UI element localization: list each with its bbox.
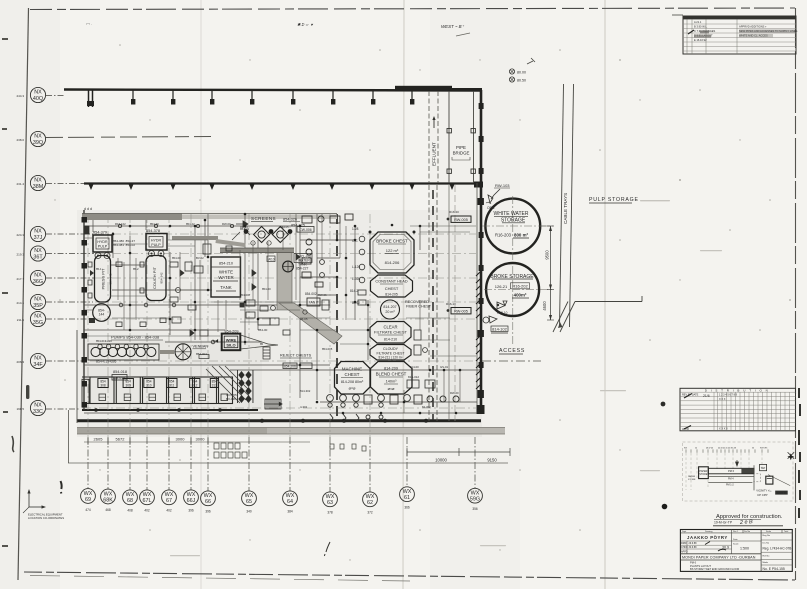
svg-text:APPD: APPD <box>681 550 688 553</box>
svg-text:NX: NX <box>34 403 42 409</box>
svg-text:312: 312 <box>192 383 198 387</box>
svg-text:854-001: 854-001 <box>196 352 207 356</box>
svg-text:64-105: 64-105 <box>280 225 289 229</box>
svg-text:PULP STORAGE: PULP STORAGE <box>589 197 639 203</box>
svg-text:366: 366 <box>404 506 410 510</box>
svg-text:85-1: 85-1 <box>96 267 102 271</box>
svg-text:d d d: d d d <box>84 207 92 211</box>
svg-text:68: 68 <box>127 498 133 504</box>
svg-text:Made: Made <box>763 562 769 564</box>
svg-text:Drawing: Drawing <box>705 531 712 533</box>
svg-text:126-21: 126-21 <box>495 284 508 289</box>
svg-text:36T: 36T <box>33 254 43 260</box>
svg-text:122 m³: 122 m³ <box>386 248 399 253</box>
svg-text:30.9.88: 30.9.88 <box>689 546 698 549</box>
svg-text:NX: NX <box>34 178 42 184</box>
svg-text:29.9.88: 29.9.88 <box>689 542 698 545</box>
svg-text:FIBER CHEST: FIBER CHEST <box>406 305 432 309</box>
svg-text:854-342: 854-342 <box>160 272 164 283</box>
svg-text:814-2: 814-2 <box>350 289 358 293</box>
svg-text:39Q: 39Q <box>33 140 43 146</box>
svg-text:PUMPS 854-030 - 854-038: PUMPS 854-030 - 854-038 <box>111 335 160 340</box>
svg-text:63: 63 <box>327 500 333 506</box>
svg-text:1:500: 1:500 <box>740 547 749 551</box>
svg-text:68K: 68K <box>103 497 113 503</box>
svg-text:R16-102: R16-102 <box>115 222 126 226</box>
svg-text:20 m³: 20 m³ <box>385 310 395 314</box>
svg-text:CHEST: CHEST <box>345 372 360 377</box>
svg-text:X X X: X X X <box>719 398 726 401</box>
svg-text:402: 402 <box>144 509 150 513</box>
svg-text:67: 67 <box>166 498 172 504</box>
svg-text:JAAKKO PÖYRY: JAAKKO PÖYRY <box>687 535 728 540</box>
svg-text:854-00: 854-00 <box>262 287 271 291</box>
svg-text:PRESS PIT: PRESS PIT <box>101 268 106 289</box>
svg-text:854-019-226: 854-019-226 <box>96 339 112 343</box>
svg-text:384: 384 <box>287 510 293 514</box>
svg-text:NX: NX <box>34 273 42 279</box>
svg-text:36G: 36G <box>33 279 43 285</box>
svg-text:RW-00: RW-00 <box>222 222 231 226</box>
svg-text:No. E P54-155: No. E P54-155 <box>763 567 785 571</box>
svg-text:814-210: 814-210 <box>384 338 397 342</box>
svg-text:65: 65 <box>246 499 252 505</box>
svg-text:BRIDGE: BRIDGE <box>453 151 470 156</box>
svg-text:RECOVERED: RECOVERED <box>405 300 429 304</box>
svg-text:44 43 42 41 40 39a 38: 44 43 42 41 40 39a 38 <box>718 448 736 450</box>
svg-text:372: 372 <box>367 511 373 515</box>
svg-text:SCREENS: SCREENS <box>251 216 276 221</box>
svg-text:854-341: 854-341 <box>109 273 113 284</box>
svg-text:PM 1-2: PM 1-2 <box>726 484 734 487</box>
svg-text:CONSTANT HEAD: CONSTANT HEAD <box>375 280 407 284</box>
svg-text:34F: 34F <box>33 362 43 368</box>
svg-text:WHITE: WHITE <box>219 270 233 275</box>
svg-text:R15-10: R15-10 <box>497 311 508 315</box>
svg-text:206.3: 206.3 <box>16 360 24 364</box>
svg-text:310: 310 <box>146 383 152 387</box>
svg-text:⌀≈⌀: ⌀≈⌀ <box>349 387 356 391</box>
svg-text:854-378: 854-378 <box>146 229 160 233</box>
svg-text:R16-10: R16-10 <box>446 302 456 306</box>
svg-text:66: 66 <box>205 499 211 505</box>
svg-text:854-379: 854-379 <box>93 231 107 235</box>
svg-text:MACHINE: MACHINE <box>342 367 362 372</box>
svg-text:854-381: 854-381 <box>113 243 124 247</box>
svg-text:STORE: STORE <box>688 479 696 481</box>
svg-text:⌀≈⌀: ⌀≈⌀ <box>388 387 395 391</box>
svg-text:BV-03b: BV-03b <box>226 397 236 401</box>
svg-text:3000: 3000 <box>196 437 206 442</box>
svg-text:814-205: 814-205 <box>385 293 398 297</box>
svg-text:219.3: 219.3 <box>16 253 24 257</box>
svg-text:854-206: 854-206 <box>284 365 296 369</box>
svg-text:814-102: 814-102 <box>492 327 507 332</box>
svg-text:VENBAN: VENBAN <box>193 345 209 349</box>
svg-text:GMT D: GMT D <box>777 491 786 495</box>
svg-text:BROKE CHEST: BROKE CHEST <box>376 239 408 244</box>
svg-text:854-227: 854-227 <box>296 267 309 271</box>
svg-text:BS STOREY WET END GROUND FLOO: BS STOREY WET END GROUND FLOOR <box>690 567 739 571</box>
svg-text:WEST ~ B⁺: WEST ~ B⁺ <box>441 24 465 29</box>
svg-text:PM 4: PM 4 <box>728 478 734 481</box>
svg-text:198.5: 198.5 <box>16 407 24 411</box>
svg-text:80.00: 80.00 <box>517 71 526 75</box>
svg-text:TAP: TAP <box>761 467 766 470</box>
svg-text:CW-006: CW-006 <box>299 228 311 232</box>
svg-text:814-208 80m³: 814-208 80m³ <box>341 380 364 384</box>
svg-text:84-302: 84-302 <box>422 405 431 409</box>
svg-text:R16-203: R16-203 <box>495 233 512 238</box>
svg-text:814-302: 814-302 <box>300 389 311 393</box>
svg-text:814-209: 814-209 <box>384 367 398 371</box>
svg-text:Reg. L7434-HC-07B: Reg. L7434-HC-07B <box>763 547 792 551</box>
svg-text:854-019-026: 854-019-026 <box>96 360 116 364</box>
svg-text:80.50: 80.50 <box>517 79 526 83</box>
svg-text:REJECT CHESTS: REJECT CHESTS <box>280 354 312 358</box>
svg-text:2 e B: 2 e B <box>739 519 754 526</box>
svg-text:RW-06: RW-06 <box>318 293 327 297</box>
svg-text:PAPER: PAPER <box>688 475 696 478</box>
svg-text:62: 62 <box>367 500 373 506</box>
svg-text:402: 402 <box>166 509 172 513</box>
svg-text:FILTRATE CHEST: FILTRATE CHEST <box>374 330 408 335</box>
svg-text:COUCH PIT: COUCH PIT <box>152 266 157 289</box>
svg-text:NX: NX <box>34 248 42 254</box>
svg-text:PULP: PULP <box>98 245 108 249</box>
svg-text:RW-103: RW-103 <box>495 183 510 188</box>
svg-text:NX: NX <box>34 229 42 235</box>
svg-text:NX: NX <box>34 297 42 303</box>
svg-text:Rev 1: Rev 1 <box>733 531 739 533</box>
svg-text:CHKD: CHKD <box>681 546 688 549</box>
svg-text:Scale: Scale <box>733 544 739 546</box>
svg-text:468: 468 <box>105 508 111 512</box>
svg-text:WX7 WX: WX7 WX <box>760 448 768 450</box>
svg-text:WATER: WATER <box>218 275 233 280</box>
svg-text:OPt2: OPt2 <box>487 206 495 210</box>
svg-text:356: 356 <box>472 507 478 511</box>
svg-text:37J: 37J <box>34 235 43 241</box>
svg-text:Total: Total <box>784 530 789 533</box>
svg-text:⌐¬ ∙: ⌐¬ ∙ <box>86 22 92 26</box>
svg-text:R16-202: R16-202 <box>512 284 528 289</box>
svg-text:HYDR: HYDR <box>97 240 108 244</box>
svg-text:48 47 46: 48 47 46 <box>706 448 713 450</box>
svg-text:A 21.1: A 21.1 <box>694 20 702 24</box>
svg-text:RW-00: RW-00 <box>450 391 459 395</box>
svg-text:Date: Date <box>733 538 738 541</box>
svg-text:4600: 4600 <box>542 301 547 311</box>
svg-text:140m³: 140m³ <box>386 380 397 384</box>
svg-text:Ref No: Ref No <box>763 556 771 558</box>
svg-text:61: 61 <box>404 495 410 501</box>
svg-text:378: 378 <box>327 511 333 515</box>
svg-text:35G: 35G <box>33 320 43 326</box>
svg-text:W10: W10 <box>268 258 275 262</box>
svg-text:854-30: 854-30 <box>150 222 159 226</box>
svg-text:40Q: 40Q <box>33 96 43 102</box>
svg-text:9150: 9150 <box>487 458 497 463</box>
svg-text:54: 54 <box>695 448 697 450</box>
svg-text:9500: 9500 <box>545 250 550 260</box>
svg-text:NX: NX <box>34 134 42 140</box>
svg-text:30.9: 30.9 <box>722 546 729 550</box>
svg-text:ACCESS: ACCESS <box>499 348 525 354</box>
svg-text:854-018: 854-018 <box>113 370 127 374</box>
svg-text:85: 85 <box>260 342 264 346</box>
svg-text:814-211 | 120 m³: 814-211 | 120 m³ <box>379 356 403 360</box>
svg-text:814-207: 814-207 <box>383 305 396 309</box>
svg-text:2605: 2605 <box>94 437 104 442</box>
svg-text:PULP: PULP <box>151 243 161 247</box>
svg-text:217.7: 217.7 <box>16 277 24 281</box>
svg-text:PM 6: PM 6 <box>728 469 735 473</box>
svg-text:854-02: 854-02 <box>126 243 136 247</box>
svg-text:85-2: 85-2 <box>133 267 139 271</box>
svg-text:67L: 67L <box>143 498 152 504</box>
svg-text:5672: 5672 <box>116 437 126 442</box>
svg-text:GS-01: GS-01 <box>440 365 449 369</box>
svg-text:CLOUDY: CLOUDY <box>383 347 399 351</box>
svg-text:854-005: 854-005 <box>322 347 333 351</box>
svg-text:PIPE: PIPE <box>456 145 466 150</box>
svg-text:854-210: 854-210 <box>219 262 233 266</box>
svg-text:854-02: 854-02 <box>186 222 195 226</box>
svg-text:LOCATION CO-ORDINATES: LOCATION CO-ORDINATES <box>28 516 64 520</box>
svg-text:814-00: 814-00 <box>410 365 419 369</box>
svg-text:33C: 33C <box>33 409 43 415</box>
svg-text:RW-005: RW-005 <box>454 218 468 222</box>
svg-text:800 m³: 800 m³ <box>514 233 528 238</box>
svg-text:NX: NX <box>34 356 42 362</box>
svg-text:Dept: Dept <box>682 530 687 533</box>
svg-text:X X X X: X X X X <box>719 428 728 431</box>
svg-text:19-M-Gr-TP: 19-M-Gr-TP <box>714 521 733 525</box>
svg-text:340: 340 <box>246 510 252 514</box>
svg-text:854-326: 854-326 <box>283 218 297 222</box>
svg-text:814-312: 814-312 <box>408 375 419 379</box>
svg-text:214.1: 214.1 <box>16 301 24 305</box>
svg-text:Rw-10: Rw-10 <box>240 225 249 229</box>
svg-text:Dis No: Dis No <box>763 543 770 545</box>
svg-text:CABLE TRAYS: CABLE TRAYS <box>563 193 568 224</box>
svg-text:38M: 38M <box>33 184 44 190</box>
svg-text:35P: 35P <box>33 303 43 309</box>
svg-text:1-28: 1-28 <box>352 227 359 231</box>
svg-text:69: 69 <box>85 497 91 503</box>
svg-text:CP CPP: CP CPP <box>757 493 767 497</box>
svg-text:SILO: SILO <box>226 343 235 348</box>
svg-text:1 2 3 4 5 6 7 8 9: 1 2 3 4 5 6 7 8 9 <box>719 394 738 397</box>
svg-text:R16-20: R16-20 <box>449 210 459 214</box>
svg-text:TANK: TANK <box>220 285 231 290</box>
svg-text:211.5: 211.5 <box>17 318 25 322</box>
svg-text:HYDR: HYDR <box>151 239 162 243</box>
svg-text:21/6: 21/6 <box>703 394 710 398</box>
svg-text:Scale: Scale <box>766 531 772 533</box>
svg-text:✱ Σ·=· ▾: ✱ Σ·=· ▾ <box>297 22 314 27</box>
svg-text:814-206: 814-206 <box>385 260 400 265</box>
svg-text:NX: NX <box>34 90 42 96</box>
svg-text:EFFLUENT: EFFLUENT <box>432 142 437 166</box>
svg-text:59G: 59G <box>470 497 480 503</box>
svg-text:238.0: 238.0 <box>16 138 24 142</box>
svg-text:DRW: DRW <box>681 542 687 545</box>
svg-text:MONDI PAPER COMPANY LTD -DURBA: MONDI PAPER COMPANY LTD -DURBAN <box>682 555 756 559</box>
svg-text:400m³: 400m³ <box>514 293 527 298</box>
svg-text:854-00: 854-00 <box>172 256 181 260</box>
svg-text:4-302: 4-302 <box>300 405 308 409</box>
svg-text:FAN P: FAN P <box>309 301 320 305</box>
svg-text:854-007: 854-007 <box>240 293 251 297</box>
svg-text:244.3: 244.3 <box>16 94 24 98</box>
svg-text:396: 396 <box>188 509 194 513</box>
svg-text:854-00: 854-00 <box>258 328 268 332</box>
svg-text:224.3: 224.3 <box>16 233 24 237</box>
svg-text:396: 396 <box>205 510 211 514</box>
svg-text:309: 309 <box>126 383 132 387</box>
svg-text:66J: 66J <box>187 498 196 504</box>
svg-text:3000: 3000 <box>176 437 186 442</box>
svg-text:B 3.90 W.L.: B 3.90 W.L. <box>694 25 708 29</box>
svg-text:Reg No: Reg No <box>763 535 771 537</box>
svg-text:408: 408 <box>127 509 133 513</box>
svg-text:231.4: 231.4 <box>16 182 24 186</box>
svg-text:854-002: 854-002 <box>305 292 317 296</box>
svg-text:NX: NX <box>34 314 42 320</box>
svg-text:64: 64 <box>287 499 293 505</box>
svg-text:Dis No: Dis No <box>744 531 751 533</box>
svg-text:10000: 10000 <box>435 458 447 463</box>
svg-text:RW-005: RW-005 <box>454 310 468 314</box>
svg-text:474: 474 <box>85 508 91 512</box>
svg-text:D I S T R I B U T I O N: D I S T R I B U T I O N <box>705 388 770 392</box>
svg-text:BLEND CHEST: BLEND CHEST <box>376 372 407 377</box>
svg-text:CHEST: CHEST <box>385 286 399 291</box>
svg-text:36: 36 <box>752 448 754 450</box>
svg-text:06.05: 06.05 <box>300 317 308 321</box>
svg-text:APPRVD ADDITIONS +: APPRVD ADDITIONS + <box>739 25 767 29</box>
svg-text:STORE: STORE <box>699 473 708 476</box>
svg-text:E 16.10.92: E 16.10.92 <box>694 38 707 42</box>
svg-text:308: 308 <box>100 383 106 387</box>
svg-text:313: 313 <box>212 383 218 387</box>
svg-text:BV-02: BV-02 <box>196 256 204 260</box>
svg-text:144: 144 <box>99 313 105 317</box>
svg-text:311: 311 <box>169 383 174 387</box>
